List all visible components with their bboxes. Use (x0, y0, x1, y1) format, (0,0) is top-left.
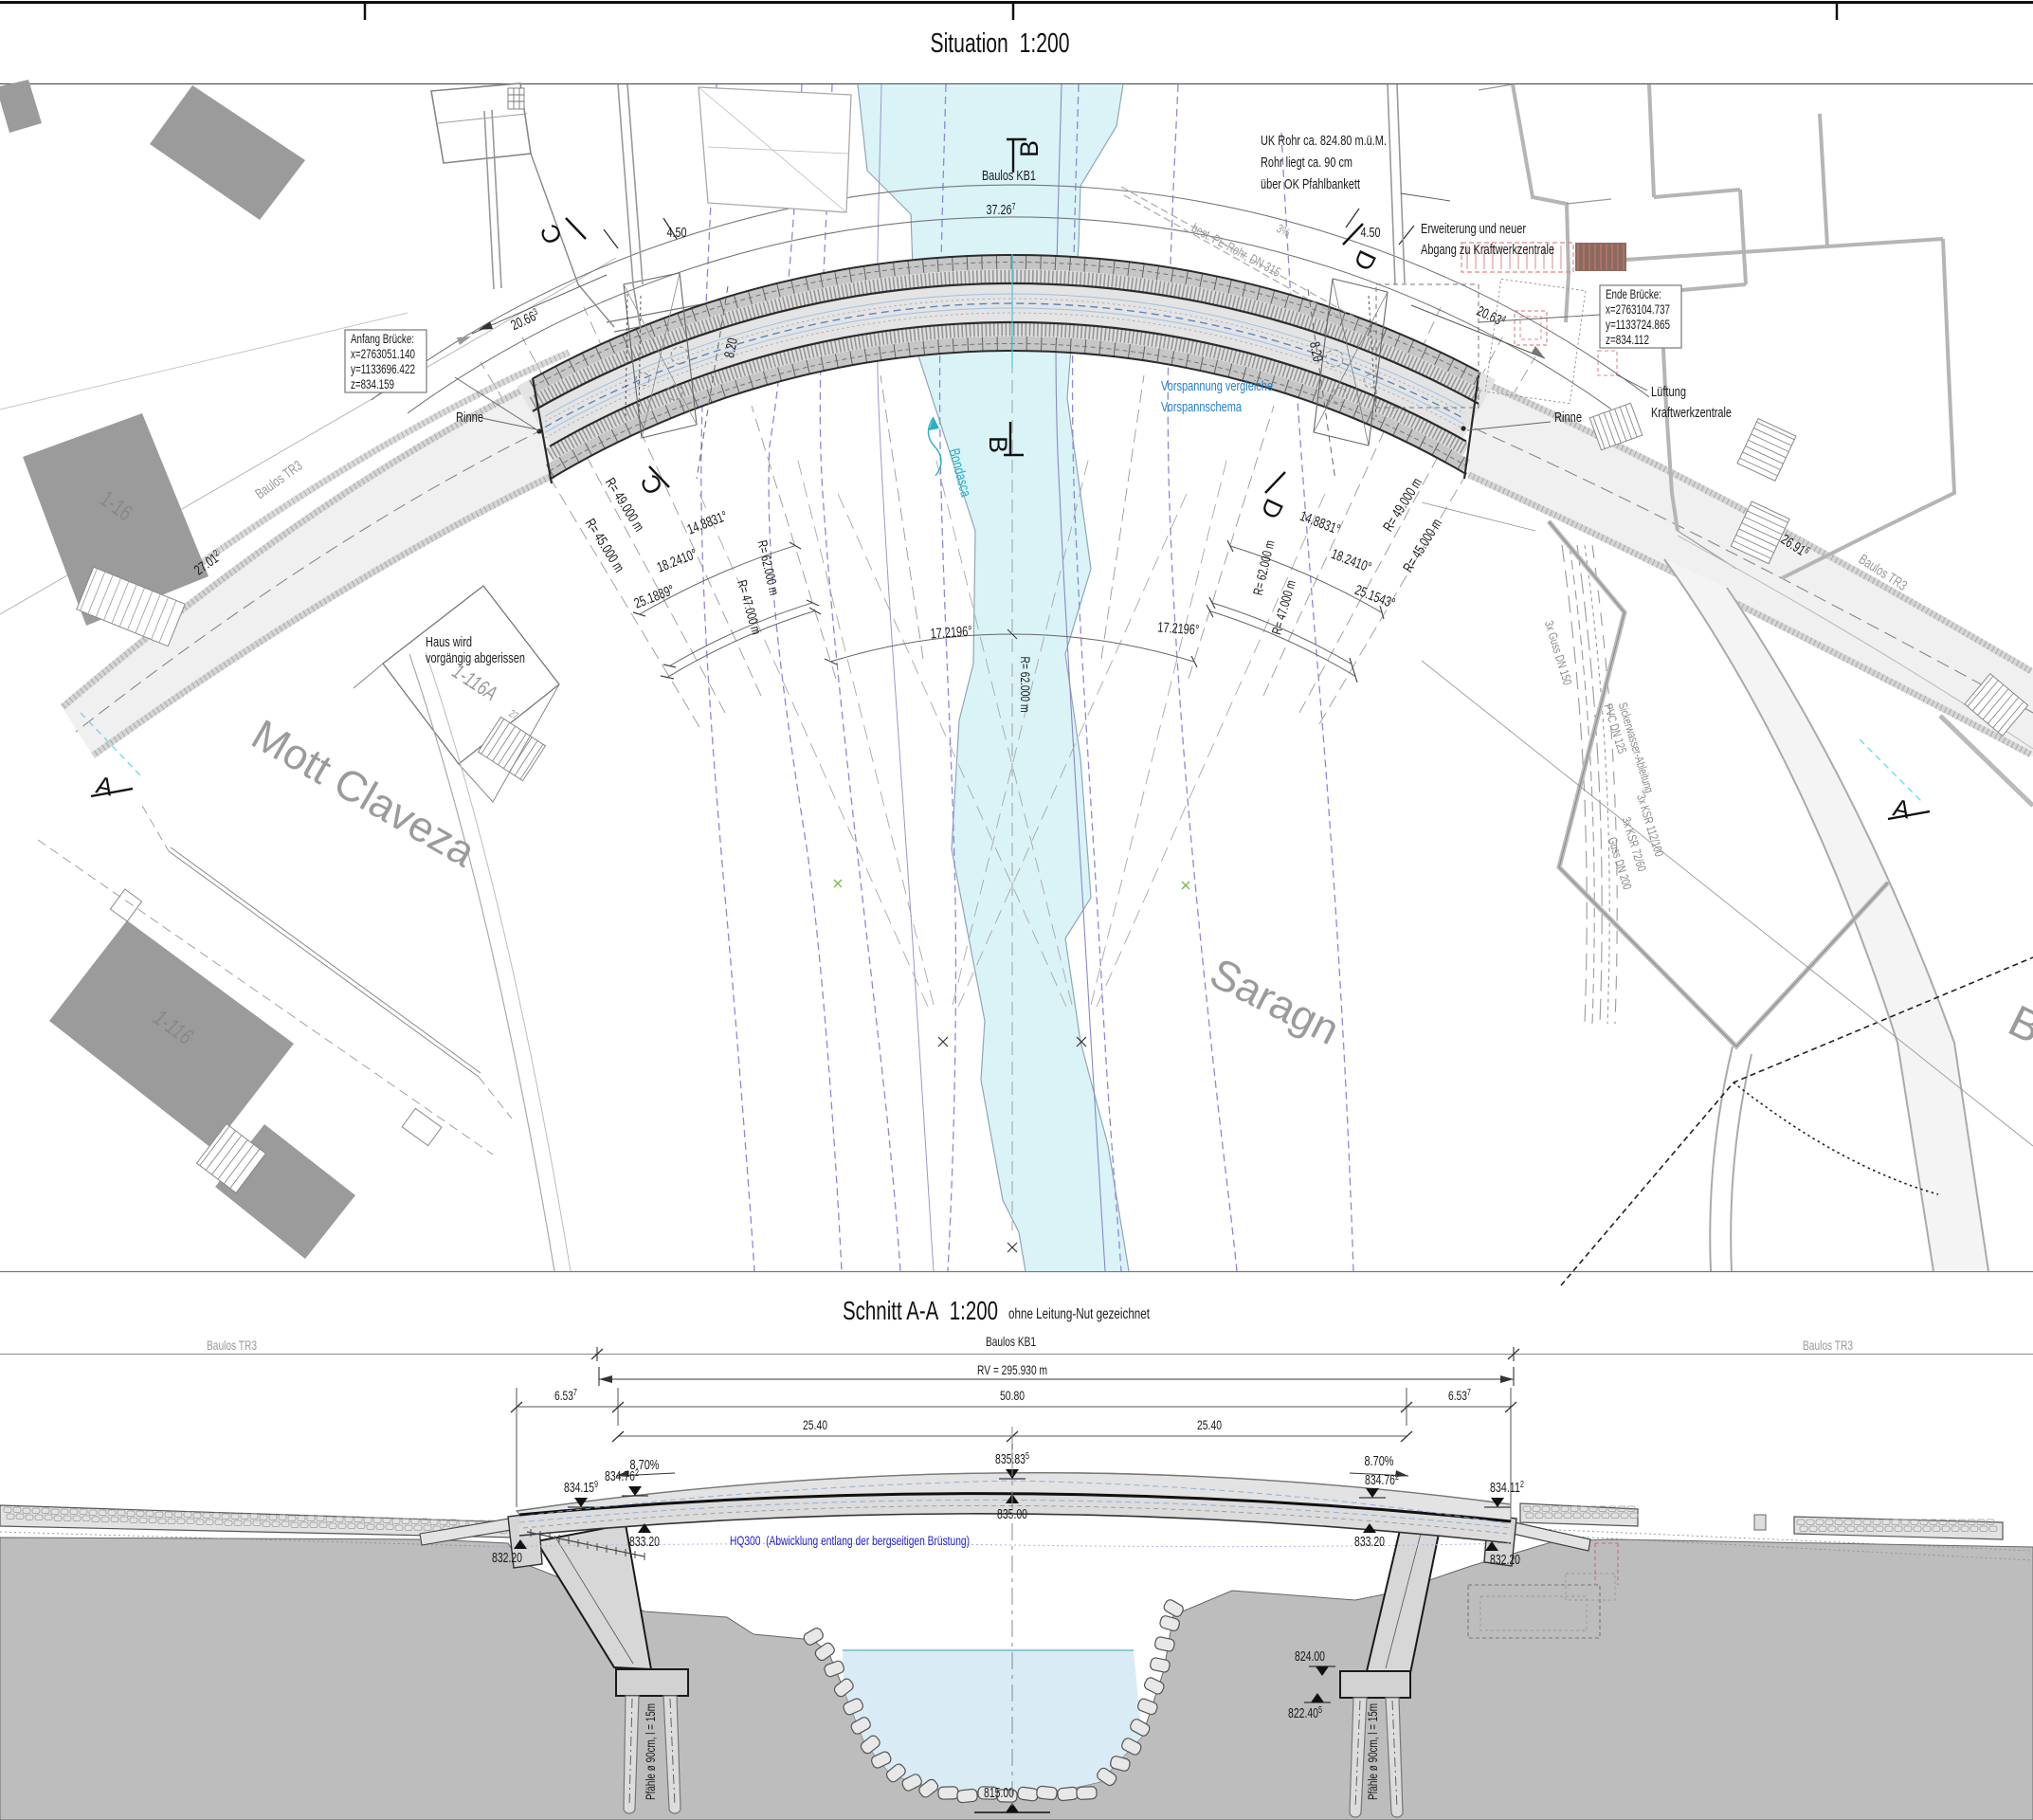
svg-text:Anfang Brücke:: Anfang Brücke: (351, 332, 414, 346)
svg-text:Erweiterung und neuer: Erweiterung und neuer (1421, 221, 1526, 237)
svg-text:4.50: 4.50 (667, 225, 687, 241)
svg-text:832.20: 832.20 (1490, 1553, 1520, 1568)
svg-text:Baulos TR3: Baulos TR3 (1803, 1338, 1853, 1353)
svg-text:y=1133724.865: y=1133724.865 (1606, 318, 1670, 332)
svg-text:HQ300 (Abwicklung entlang der: HQ300 (Abwicklung entlang der bergseitig… (730, 1533, 970, 1548)
svg-text:Kraftwerkzentrale: Kraftwerkzentrale (1651, 405, 1732, 421)
svg-text:z=834.112: z=834.112 (1606, 333, 1649, 347)
svg-text:17.2196°: 17.2196° (1157, 619, 1200, 638)
svg-text:50.80: 50.80 (1000, 1388, 1025, 1403)
svg-text:Vorspannschema: Vorspannschema (1161, 399, 1242, 415)
svg-text:Lüftung: Lüftung (1651, 384, 1686, 400)
svg-text:RV = 295.930 m: RV = 295.930 m (977, 1362, 1047, 1377)
svg-text:37.267: 37.267 (987, 202, 1016, 218)
svg-text:832.20: 832.20 (492, 1551, 522, 1566)
svg-text:Vorspannung vergleiche: Vorspannung vergleiche (1161, 378, 1273, 394)
svg-text:x=2763104.737: x=2763104.737 (1606, 302, 1670, 317)
svg-text:Rinne: Rinne (1554, 409, 1582, 426)
svg-text:834.762: 834.762 (1365, 1472, 1399, 1488)
svg-text:834.112: 834.112 (1490, 1480, 1524, 1496)
svg-text:Schnitt A-A 1:200: Schnitt A-A 1:200 (843, 1296, 998, 1325)
svg-text:R= 62.000 m: R= 62.000 m (1018, 657, 1033, 713)
svg-text:815.00: 815.00 (984, 1786, 1014, 1801)
svg-text:Baulos KB1: Baulos KB1 (982, 168, 1036, 184)
svg-text:über OK Pfahlbankett: über OK Pfahlbankett (1261, 176, 1361, 192)
svg-text:834.762: 834.762 (605, 1468, 639, 1484)
svg-text:8.70%: 8.70% (1365, 1453, 1394, 1469)
svg-text:833.20: 833.20 (1354, 1535, 1385, 1550)
svg-text:x=2763051.140: x=2763051.140 (351, 347, 415, 361)
svg-text:834.159: 834.159 (564, 1480, 598, 1496)
svg-text:vorgängig abgerissen: vorgängig abgerissen (426, 650, 525, 666)
svg-text:Baulos KB1: Baulos KB1 (986, 1334, 1036, 1349)
svg-text:4.50: 4.50 (1361, 225, 1381, 241)
svg-text:Abgang zu Kraftwerkzentrale: Abgang zu Kraftwerkzentrale (1421, 242, 1554, 258)
svg-text:Baulos TR3: Baulos TR3 (207, 1338, 257, 1353)
svg-text:Haus wird: Haus wird (426, 634, 472, 650)
svg-text:z=834.159: z=834.159 (351, 377, 394, 391)
svg-text:824.00: 824.00 (1295, 1649, 1325, 1665)
svg-text:Rohr liegt ca. 90 cm: Rohr liegt ca. 90 cm (1261, 155, 1352, 171)
svg-text:Situation 1:200: Situation 1:200 (931, 28, 1070, 59)
svg-text:y=1133696.422: y=1133696.422 (351, 362, 415, 376)
svg-text:Pfähle ø 90cm, l = 15m: Pfähle ø 90cm, l = 15m (1366, 1703, 1380, 1800)
svg-text:822.405: 822.405 (1288, 1705, 1322, 1721)
svg-text:UK Rohr ca. 824.80 m.ü.M.: UK Rohr ca. 824.80 m.ü.M. (1261, 133, 1387, 149)
svg-text:25.40: 25.40 (803, 1417, 827, 1432)
svg-text:17.2196°: 17.2196° (930, 623, 972, 642)
svg-text:Rinne: Rinne (456, 409, 483, 426)
svg-text:ohne Leitung-Nut gezeichnet: ohne Leitung-Nut gezeichnet (1008, 1306, 1150, 1322)
svg-text:B: B (1015, 140, 1044, 157)
svg-text:Ende Brücke:: Ende Brücke: (1606, 287, 1661, 301)
svg-text:833.20: 833.20 (629, 1535, 660, 1550)
svg-text:25.40: 25.40 (1197, 1417, 1222, 1432)
svg-text:B: B (984, 436, 1012, 453)
svg-text:Pfähle ø 90cm, l = 15m: Pfähle ø 90cm, l = 15m (644, 1703, 658, 1800)
